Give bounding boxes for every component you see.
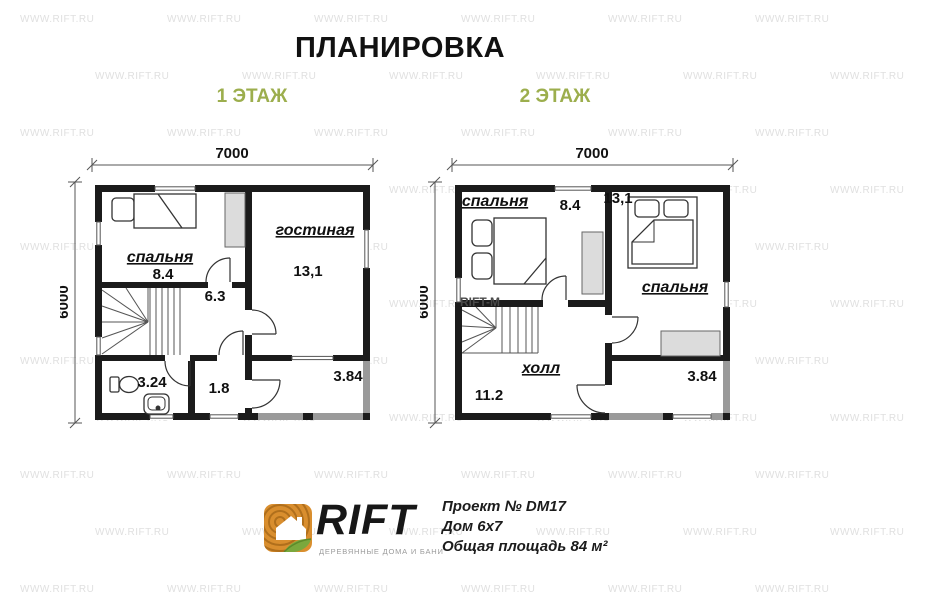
floor1-hall-area: 6.3 bbox=[205, 288, 226, 305]
brand-tagline: ДЕРЕВЯННЫЕ ДОМА И БАНИ bbox=[319, 547, 444, 556]
floor1-living-area: 13,1 bbox=[293, 263, 322, 280]
site-watermark: WWW.RIFT.RU bbox=[314, 14, 388, 25]
site-watermark: WWW.RIFT.RU bbox=[20, 14, 94, 25]
floor1-terrace-area: 3.84 bbox=[333, 368, 363, 385]
floor2-hall-name: холл bbox=[521, 360, 560, 377]
site-watermark: WWW.RIFT.RU bbox=[167, 128, 241, 139]
site-watermark: WWW.RIFT.RU bbox=[314, 128, 388, 139]
page: WWW.RIFT.RUWWW.RIFT.RUWWW.RIFT.RUWWW.RIF… bbox=[0, 0, 939, 615]
floor1-label: 1 ЭТАЖ bbox=[172, 86, 332, 108]
site-watermark: WWW.RIFT.RU bbox=[167, 584, 241, 595]
floor1-dim-height: 6000 bbox=[60, 285, 72, 318]
floor2-bedroom-left-name: спальня bbox=[462, 193, 529, 210]
site-watermark: WWW.RIFT.RU bbox=[461, 14, 535, 25]
site-watermark: WWW.RIFT.RU bbox=[608, 584, 682, 595]
site-watermark: WWW.RIFT.RU bbox=[830, 299, 904, 310]
site-watermark: WWW.RIFT.RU bbox=[461, 470, 535, 481]
floor2-bedroom-right-area: 13,1 bbox=[603, 190, 632, 207]
floor2-dim-width: 7000 bbox=[575, 145, 608, 162]
site-watermark: WWW.RIFT.RU bbox=[536, 71, 610, 82]
floor2-balcony-area: 3.84 bbox=[687, 368, 717, 385]
floor2-hall-area: 11.2 bbox=[475, 387, 503, 404]
site-watermark: WWW.RIFT.RU bbox=[830, 413, 904, 424]
floor2-bedroom-left-area: 8.4 bbox=[560, 197, 582, 214]
site-watermark: WWW.RIFT.RU bbox=[683, 71, 757, 82]
site-watermark: WWW.RIFT.RU bbox=[461, 584, 535, 595]
floor2-plan: 7000 6000 bbox=[420, 140, 740, 430]
site-watermark: WWW.RIFT.RU bbox=[20, 128, 94, 139]
floor2-closet-left-icon bbox=[582, 232, 603, 294]
site-watermark: WWW.RIFT.RU bbox=[608, 128, 682, 139]
floor1-entry-area: 1.8 bbox=[209, 380, 230, 397]
floor2-bed-right-icon bbox=[628, 197, 697, 268]
floor1-bedroom-area: 8.4 bbox=[153, 266, 175, 283]
site-watermark: WWW.RIFT.RU bbox=[20, 470, 94, 481]
floor1-closet-icon bbox=[225, 193, 245, 247]
floor1-toilet-icon bbox=[110, 377, 139, 393]
brand-name: RIFT bbox=[316, 496, 416, 545]
floor1-dim-width: 7000 bbox=[215, 145, 248, 162]
site-watermark: WWW.RIFT.RU bbox=[755, 356, 829, 367]
site-watermark: WWW.RIFT.RU bbox=[242, 71, 316, 82]
site-watermark: WWW.RIFT.RU bbox=[95, 71, 169, 82]
site-watermark: WWW.RIFT.RU bbox=[314, 584, 388, 595]
floor1-bathroom-area: 3.24 bbox=[137, 374, 167, 391]
floor2-dim-height: 6000 bbox=[420, 285, 432, 318]
site-watermark: WWW.RIFT.RU bbox=[830, 185, 904, 196]
site-watermark: WWW.RIFT.RU bbox=[608, 14, 682, 25]
floor1-bedroom-name: спальня bbox=[127, 249, 194, 266]
site-watermark: WWW.RIFT.RU bbox=[314, 470, 388, 481]
site-watermark: WWW.RIFT.RU bbox=[830, 527, 904, 538]
site-watermark: WWW.RIFT.RU bbox=[167, 470, 241, 481]
house-size: Дом 6х7 bbox=[442, 518, 762, 535]
site-watermark: WWW.RIFT.RU bbox=[95, 527, 169, 538]
site-watermark: WWW.RIFT.RU bbox=[755, 128, 829, 139]
floor2-label: 2 ЭТАЖ bbox=[475, 86, 635, 108]
rift-logo-icon bbox=[264, 504, 312, 552]
floor1-living-name: гостиная bbox=[276, 222, 355, 239]
total-area: Общая площадь 84 м² bbox=[442, 538, 762, 555]
site-watermark: WWW.RIFT.RU bbox=[20, 584, 94, 595]
floor1-sink-icon bbox=[144, 394, 169, 414]
site-watermark: WWW.RIFT.RU bbox=[167, 14, 241, 25]
site-watermark: WWW.RIFT.RU bbox=[830, 71, 904, 82]
floor1-plan: 7000 6000 bbox=[60, 140, 380, 430]
floor2-plan-watermark: RIFT-M bbox=[460, 295, 500, 309]
site-watermark: WWW.RIFT.RU bbox=[755, 584, 829, 595]
floor2-bedroom-right-name: спальня bbox=[642, 279, 709, 296]
site-watermark: WWW.RIFT.RU bbox=[608, 470, 682, 481]
floor2-closet-right-icon bbox=[661, 331, 720, 356]
site-watermark: WWW.RIFT.RU bbox=[389, 71, 463, 82]
site-watermark: WWW.RIFT.RU bbox=[461, 128, 535, 139]
page-title: ПЛАНИРОВКА bbox=[250, 32, 550, 65]
site-watermark: WWW.RIFT.RU bbox=[755, 14, 829, 25]
site-watermark: WWW.RIFT.RU bbox=[755, 242, 829, 253]
site-watermark: WWW.RIFT.RU bbox=[755, 470, 829, 481]
project-number: Проект № DM17 bbox=[442, 498, 762, 515]
